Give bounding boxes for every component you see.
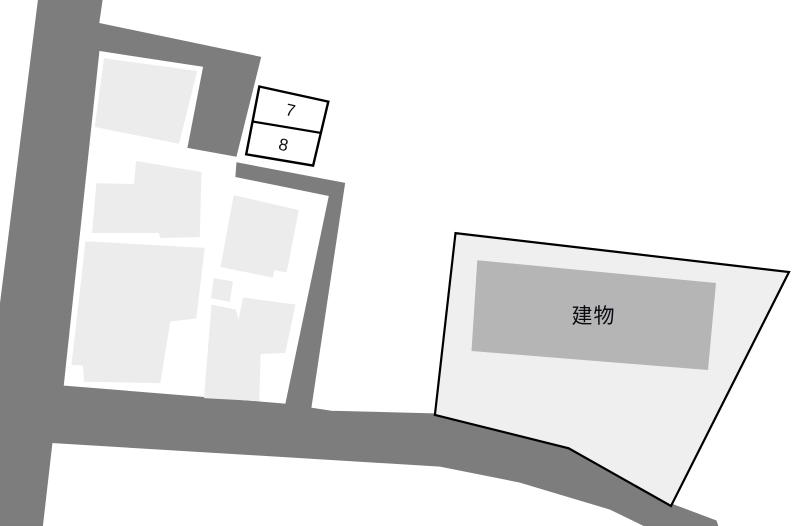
svg-text:建物: 建物 bbox=[572, 305, 616, 328]
